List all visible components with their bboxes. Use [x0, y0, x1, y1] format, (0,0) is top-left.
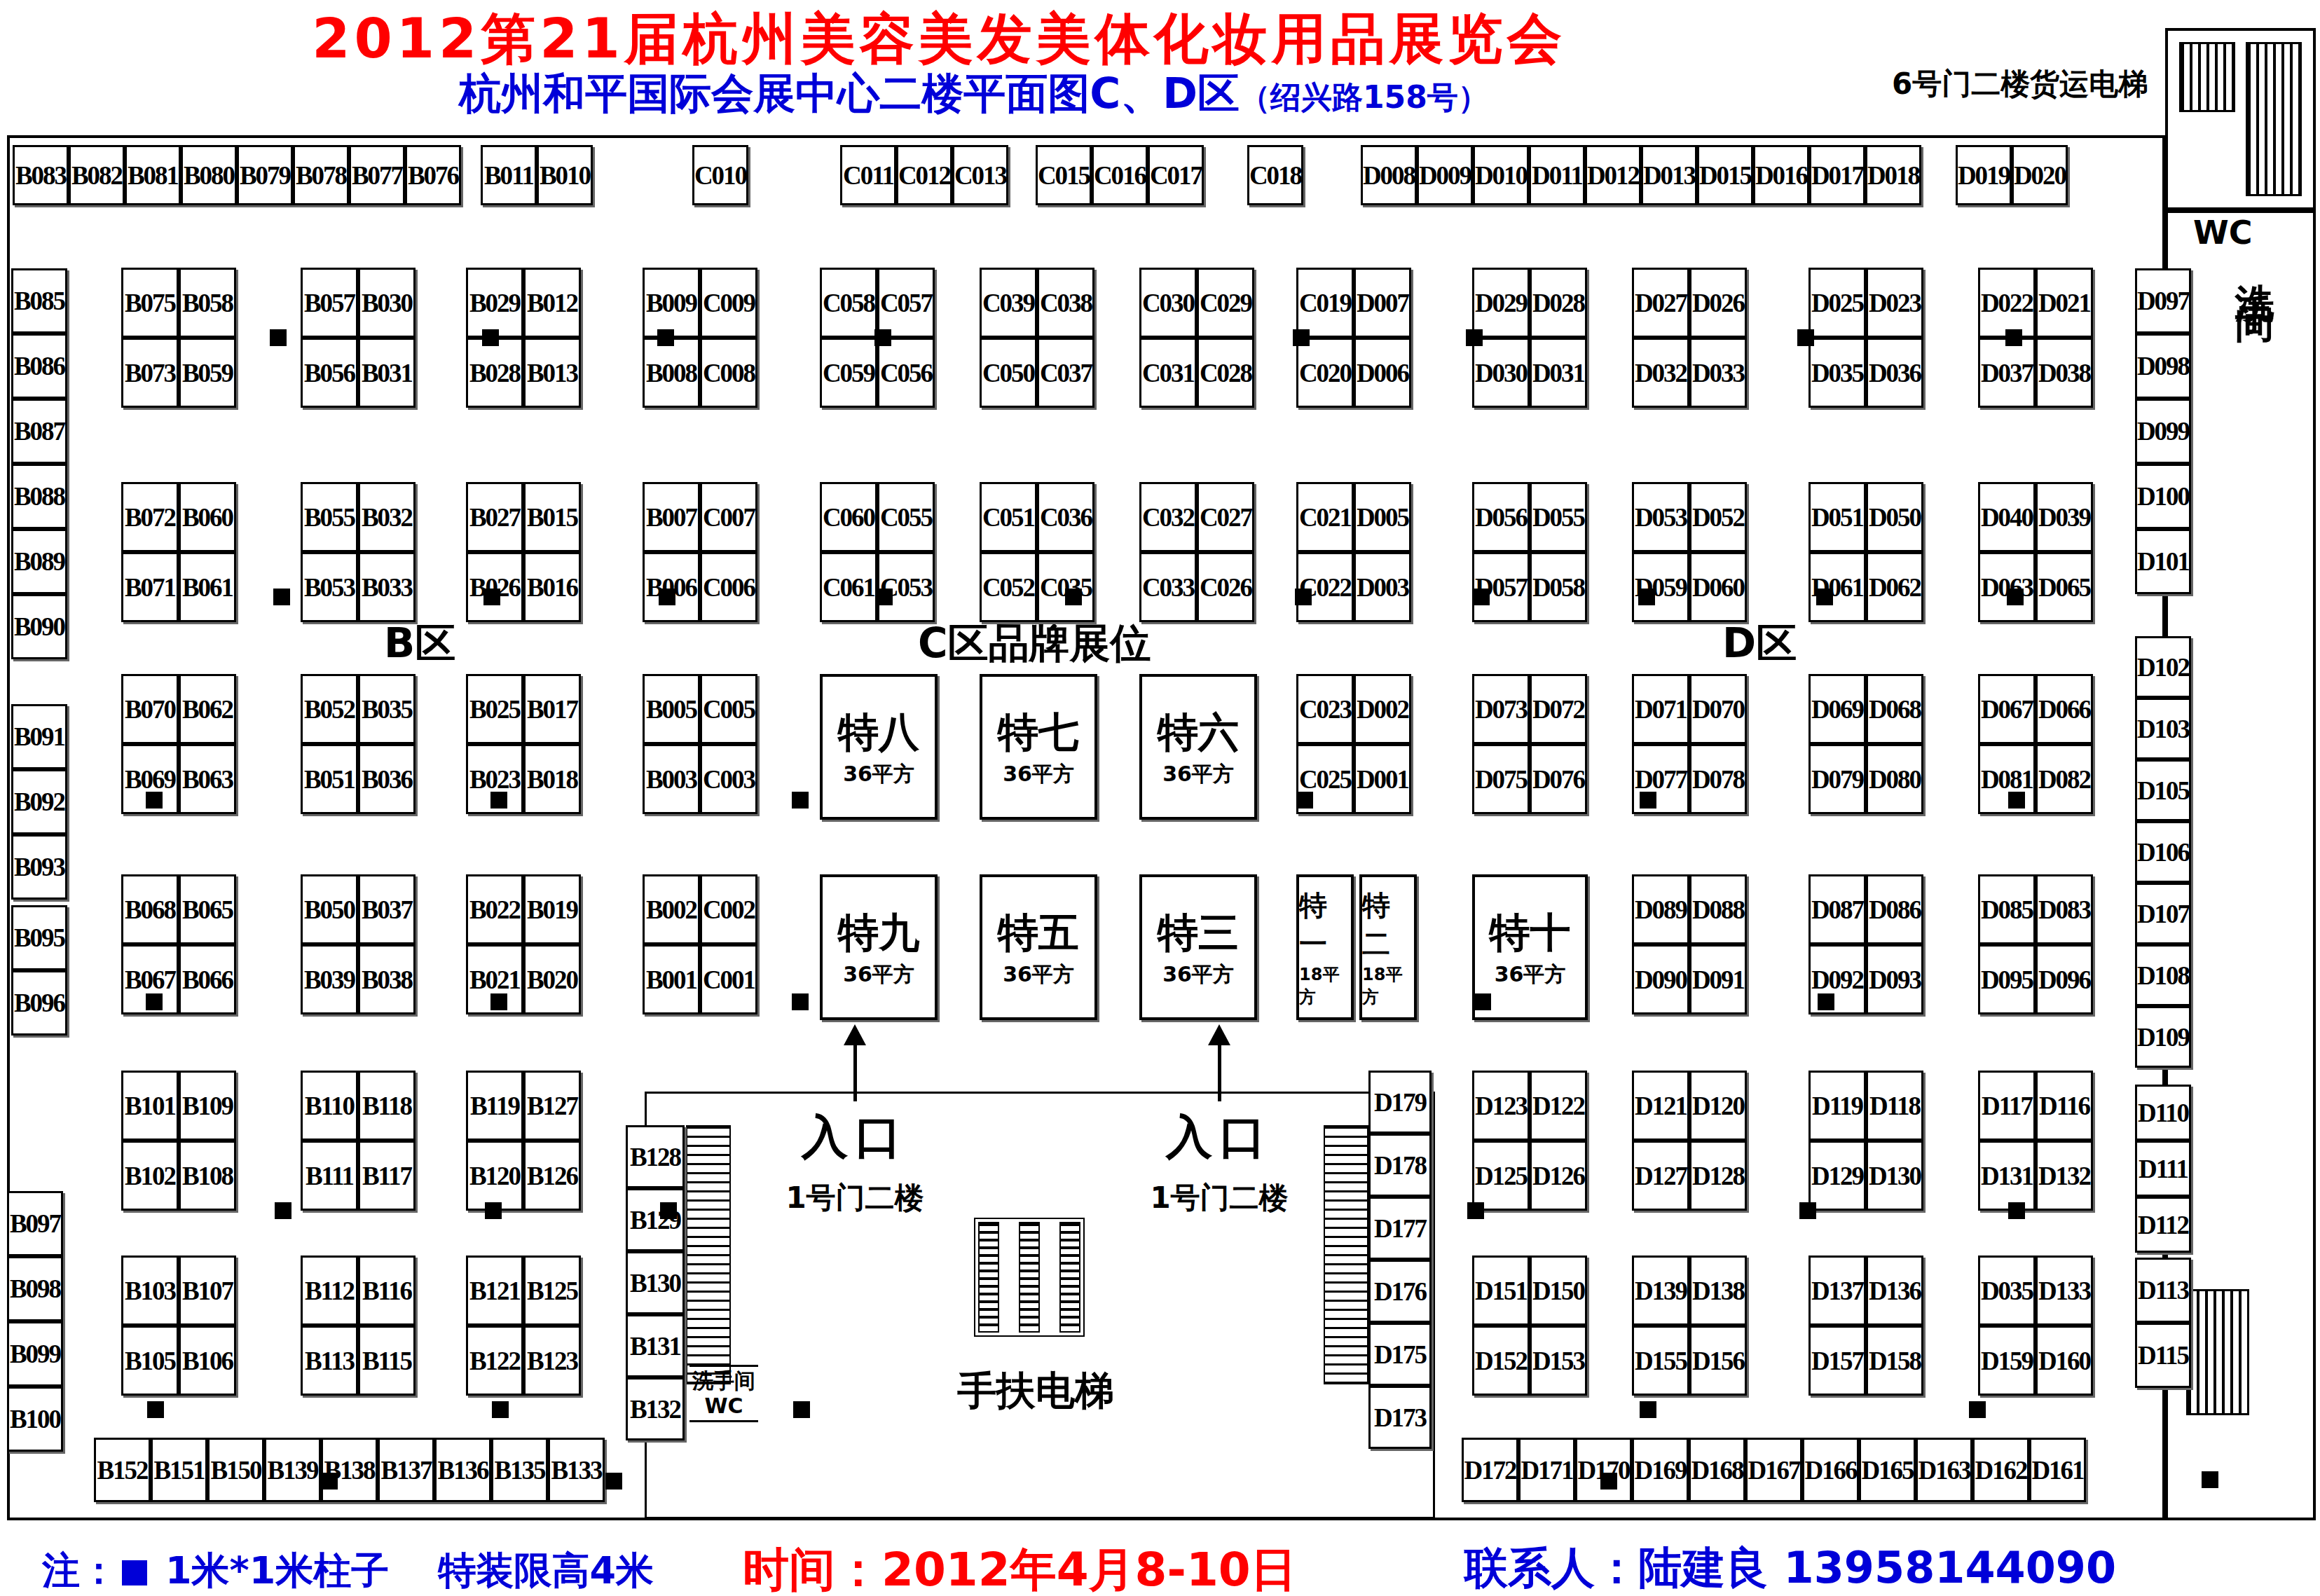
pillar	[275, 1202, 291, 1219]
booth-D002: D002	[1354, 674, 1411, 744]
booth-D130: D130	[1866, 1141, 1923, 1211]
booth-B002: B002	[643, 874, 700, 944]
booth-D025: D025	[1808, 268, 1866, 338]
booth-C015: C015	[1036, 145, 1092, 205]
pillar	[1467, 1202, 1484, 1219]
booth-B136: B136	[434, 1438, 491, 1502]
booth-D001: D001	[1354, 744, 1411, 814]
freight-elevator-label: 6号门二楼货运电梯	[1892, 64, 2148, 104]
legend-note: 注：1米*1米柱子特装限高4米	[42, 1546, 654, 1596]
booth-D109: D109	[2135, 1006, 2191, 1068]
booth-B027: B027	[466, 482, 523, 552]
booth-B018: B018	[523, 744, 581, 814]
pillar	[485, 1202, 502, 1219]
booth-B055: B055	[301, 482, 358, 552]
booth-D158: D158	[1866, 1326, 1923, 1396]
booth-B029: B029	[466, 268, 523, 338]
booth-C027: C027	[1197, 482, 1254, 552]
booth-D150: D150	[1530, 1256, 1587, 1326]
booth-D020: D020	[2012, 145, 2068, 205]
booth-B131: B131	[626, 1314, 685, 1377]
booth-B017: B017	[523, 674, 581, 744]
booth-C002: C002	[700, 874, 757, 944]
booth-B110: B110	[301, 1071, 358, 1141]
booth-B028: B028	[466, 338, 523, 408]
booth-D091: D091	[1689, 944, 1747, 1014]
booth-B003: B003	[643, 744, 700, 814]
booth-B117: B117	[358, 1141, 416, 1211]
booth-D033: D033	[1689, 338, 1747, 408]
booth-B030: B030	[358, 268, 416, 338]
booth-D103: D103	[2135, 698, 2191, 759]
booth-D097: D097	[2135, 268, 2191, 333]
booth-B082: B082	[69, 145, 125, 205]
booth-D169: D169	[1632, 1438, 1689, 1502]
pillar	[1600, 1473, 1617, 1490]
booth-D088: D088	[1689, 874, 1747, 944]
booth-B010: B010	[537, 145, 593, 205]
entrance-1-sub: 1号门二楼	[771, 1178, 939, 1218]
booth-B051: B051	[301, 744, 358, 814]
booth-D031: D031	[1530, 338, 1587, 408]
booth-C017: C017	[1148, 145, 1204, 205]
booth-B113: B113	[301, 1326, 358, 1396]
booth-D152: D152	[1472, 1326, 1530, 1396]
booth-D177: D177	[1368, 1197, 1432, 1260]
booth-B061: B061	[179, 552, 236, 622]
booth-B031: B031	[358, 338, 416, 408]
booth-B052: B052	[301, 674, 358, 744]
booth-B111: B111	[301, 1141, 358, 1211]
booth-B079: B079	[237, 145, 293, 205]
booth-D100: D100	[2135, 464, 2191, 529]
booth-B093: B093	[11, 834, 67, 900]
special-booth-特五: 特五36平方	[980, 874, 1097, 1020]
booth-D083: D083	[2036, 874, 2093, 944]
booth-B085: B085	[11, 268, 67, 333]
pillar	[659, 589, 675, 605]
booth-B026: B026	[466, 552, 523, 622]
special-booth-特九: 特九36平方	[820, 874, 938, 1020]
booth-B089: B089	[11, 529, 67, 594]
entrance-1-label: 入口	[771, 1106, 939, 1169]
booth-D161: D161	[2029, 1438, 2086, 1502]
booth-C051: C051	[980, 482, 1037, 552]
booth-B006: B006	[643, 552, 700, 622]
legend-contact: 联系人：陆建良 13958144090	[1464, 1539, 2116, 1596]
pillar	[482, 329, 499, 346]
booth-B001: B001	[643, 944, 700, 1014]
booth-D022: D022	[1978, 268, 2036, 338]
booth-C037: C037	[1037, 338, 1094, 408]
booth-D110: D110	[2135, 1085, 2191, 1141]
booth-C028: C028	[1197, 338, 1254, 408]
pillar	[874, 329, 891, 346]
booth-B063: B063	[179, 744, 236, 814]
booth-C005: C005	[700, 674, 757, 744]
booth-D075: D075	[1472, 744, 1530, 814]
booth-D095: D095	[1978, 944, 2036, 1014]
booth-B086: B086	[11, 333, 67, 399]
booth-C029: C029	[1197, 268, 1254, 338]
pillar	[792, 792, 809, 809]
pillar	[483, 589, 500, 605]
stairs-right	[1324, 1125, 1368, 1384]
booth-D139: D139	[1632, 1256, 1689, 1326]
booth-B119: B119	[466, 1071, 523, 1141]
wc-center-label: 洗手间 WC	[689, 1365, 758, 1422]
booth-B007: B007	[643, 482, 700, 552]
booth-C058: C058	[820, 268, 877, 338]
booth-B070: B070	[121, 674, 179, 744]
booth-D120: D120	[1689, 1071, 1747, 1141]
legend-time: 时间：2012年4月8-10日	[743, 1539, 1297, 1596]
booth-D105: D105	[2135, 759, 2191, 821]
booth-D089: D089	[1632, 874, 1689, 944]
booth-D081: D081	[1978, 744, 2036, 814]
pillar	[1295, 589, 1312, 605]
booth-B102: B102	[121, 1141, 179, 1211]
booth-D030: D030	[1472, 338, 1530, 408]
booth-D003: D003	[1354, 552, 1411, 622]
pillar	[1816, 589, 1833, 605]
booth-B120: B120	[466, 1141, 523, 1211]
entrance-arrow-2	[1205, 1024, 1233, 1101]
booth-C018: C018	[1247, 145, 1303, 205]
escalator-label: 手扶电梯	[957, 1365, 1114, 1418]
pillar	[492, 1401, 509, 1418]
booth-B015: B015	[523, 482, 581, 552]
booth-C032: C032	[1139, 482, 1197, 552]
booth-B125: B125	[523, 1256, 581, 1326]
pillar	[490, 792, 507, 809]
booth-D027: D027	[1632, 268, 1689, 338]
booth-C026: C026	[1197, 552, 1254, 622]
pillar	[1293, 329, 1310, 346]
wc-right-label: WC	[2193, 214, 2253, 252]
booth-D172: D172	[1462, 1438, 1518, 1502]
booth-D168: D168	[1689, 1438, 1745, 1502]
booth-D133: D133	[2036, 1256, 2093, 1326]
booth-D179: D179	[1368, 1071, 1432, 1134]
booth-C012: C012	[896, 145, 952, 205]
booth-B083: B083	[13, 145, 69, 205]
booth-D080: D080	[1866, 744, 1923, 814]
booth-B130: B130	[626, 1251, 685, 1314]
booth-B151: B151	[151, 1438, 207, 1502]
booth-B057: B057	[301, 268, 358, 338]
booth-D122: D122	[1530, 1071, 1587, 1141]
booth-D018: D018	[1865, 145, 1921, 205]
pillar	[270, 329, 287, 346]
booth-C003: C003	[700, 744, 757, 814]
booth-B013: B013	[523, 338, 581, 408]
booth-B036: B036	[358, 744, 416, 814]
booth-D117: D117	[1978, 1071, 2036, 1141]
pillar	[660, 1202, 677, 1219]
booth-B072: B072	[121, 482, 179, 552]
pillar	[1065, 589, 1082, 605]
zone-c-label: C区品牌展位	[918, 617, 1151, 671]
booth-B121: B121	[466, 1256, 523, 1326]
booth-D071: D071	[1632, 674, 1689, 744]
booth-D057: D057	[1472, 552, 1530, 622]
booth-B012: B012	[523, 268, 581, 338]
booth-B095: B095	[11, 905, 67, 970]
booth-D102: D102	[2135, 636, 2191, 698]
booth-D061: D061	[1808, 552, 1866, 622]
zone-d-label: D区	[1722, 617, 1797, 671]
booth-B133: B133	[548, 1438, 605, 1502]
booth-B025: B025	[466, 674, 523, 744]
pillar	[1797, 329, 1814, 346]
booth-B098: B098	[7, 1256, 63, 1321]
booth-B068: B068	[121, 874, 179, 944]
booth-D151: D151	[1472, 1256, 1530, 1326]
booth-C052: C052	[980, 552, 1037, 622]
entrance-arrow-1	[841, 1024, 869, 1101]
booth-D012: D012	[1585, 145, 1641, 205]
booth-C001: C001	[700, 944, 757, 1014]
pillar	[657, 329, 674, 346]
pillar	[273, 589, 290, 605]
booth-D178: D178	[1368, 1134, 1432, 1197]
booth-C020: C020	[1296, 338, 1354, 408]
special-booth-特一: 特一18平方	[1296, 874, 1354, 1020]
booth-D038: D038	[2036, 338, 2093, 408]
booth-B037: B037	[358, 874, 416, 944]
booth-B078: B078	[293, 145, 349, 205]
booth-D039: D039	[2036, 482, 2093, 552]
pillar	[1799, 1202, 1816, 1219]
entrance-2: 入口 1号门二楼	[1135, 1106, 1303, 1218]
pillar	[2008, 792, 2025, 809]
booth-B152: B152	[94, 1438, 151, 1502]
pillar	[146, 792, 163, 809]
pillar	[1640, 1401, 1656, 1418]
booth-B105: B105	[121, 1326, 179, 1396]
booth-B053: B053	[301, 552, 358, 622]
pillar	[490, 993, 507, 1010]
booth-D129: D129	[1808, 1141, 1866, 1211]
booth-C013: C013	[952, 145, 1008, 205]
booth-B090: B090	[11, 594, 67, 659]
pillar	[876, 589, 893, 605]
special-booth-特三: 特三36平方	[1139, 874, 1257, 1020]
booth-D115: D115	[2135, 1323, 2191, 1388]
entrance-1: 入口 1号门二楼	[771, 1106, 939, 1218]
booth-B132: B132	[626, 1377, 685, 1440]
booth-D019: D019	[1956, 145, 2012, 205]
booth-B065: B065	[179, 874, 236, 944]
booth-B077: B077	[349, 145, 405, 205]
booth-D138: D138	[1689, 1256, 1747, 1326]
subtitle-main: 杭州和平国际会展中心二楼平面图C、D区	[459, 69, 1240, 118]
booth-B056: B056	[301, 338, 358, 408]
booth-D028: D028	[1530, 268, 1587, 338]
zone-b-label: B区	[384, 617, 455, 671]
booth-B016: B016	[523, 552, 581, 622]
booth-D127: D127	[1632, 1141, 1689, 1211]
booth-D065: D065	[2036, 552, 2093, 622]
pillar	[146, 993, 163, 1010]
pillar	[1474, 993, 1491, 1010]
booth-C030: C030	[1139, 268, 1197, 338]
booth-C053: C053	[877, 552, 935, 622]
booth-C033: C033	[1139, 552, 1197, 622]
booth-B058: B058	[179, 268, 236, 338]
booth-D013: D013	[1641, 145, 1697, 205]
booth-D078: D078	[1689, 744, 1747, 814]
booth-D112: D112	[2135, 1197, 2191, 1253]
booth-D107: D107	[2135, 883, 2191, 944]
booth-B118: B118	[358, 1071, 416, 1141]
booth-D068: D068	[1866, 674, 1923, 744]
booth-C011: C011	[840, 145, 896, 205]
pillar-legend-swatch	[122, 1560, 147, 1585]
pillar	[793, 1401, 810, 1418]
booth-B032: B032	[358, 482, 416, 552]
booth-D066: D066	[2036, 674, 2093, 744]
booth-D059: D059	[1632, 552, 1689, 622]
booth-B108: B108	[179, 1141, 236, 1211]
booth-C061: C061	[820, 552, 877, 622]
booth-D008: D008	[1361, 145, 1417, 205]
booth-C059: C059	[820, 338, 877, 408]
booth-D010: D010	[1473, 145, 1529, 205]
booth-D111: D111	[2135, 1141, 2191, 1197]
booth-D123: D123	[1472, 1071, 1530, 1141]
subtitle-address: （绍兴路158号）	[1240, 79, 1489, 115]
booth-C019: C019	[1296, 268, 1354, 338]
pillar	[2007, 589, 2024, 605]
booth-D085: D085	[1978, 874, 2036, 944]
booth-C039: C039	[980, 268, 1037, 338]
booth-D136: D136	[1866, 1256, 1923, 1326]
booth-D052: D052	[1689, 482, 1747, 552]
freight-elevator-cab-1	[2179, 42, 2235, 112]
booth-D035: D035	[1978, 1256, 2036, 1326]
booth-C010: C010	[692, 145, 748, 205]
pillar	[2008, 1202, 2025, 1219]
booth-B135: B135	[491, 1438, 548, 1502]
booth-D073: D073	[1472, 674, 1530, 744]
booth-D128: D128	[1689, 1141, 1747, 1211]
booth-D113: D113	[2135, 1258, 2191, 1323]
booth-D015: D015	[1697, 145, 1753, 205]
escalator-lane-3	[1059, 1222, 1080, 1333]
booth-D062: D062	[1866, 552, 1923, 622]
booth-C016: C016	[1092, 145, 1148, 205]
pillar	[2005, 329, 2022, 346]
booth-B112: B112	[301, 1256, 358, 1326]
booth-B081: B081	[125, 145, 181, 205]
booth-D007: D007	[1354, 268, 1411, 338]
booth-D037: D037	[1978, 338, 2036, 408]
booth-D026: D026	[1689, 268, 1747, 338]
booth-C050: C050	[980, 338, 1037, 408]
booth-D036: D036	[1866, 338, 1923, 408]
booth-C060: C060	[820, 482, 877, 552]
booth-C008: C008	[700, 338, 757, 408]
booth-C038: C038	[1037, 268, 1094, 338]
booth-C031: C031	[1139, 338, 1197, 408]
booth-C021: C021	[1296, 482, 1354, 552]
booth-D108: D108	[2135, 944, 2191, 1006]
booth-B139: B139	[264, 1438, 321, 1502]
booth-D171: D171	[1518, 1438, 1575, 1502]
wc-center-wc: WC	[704, 1394, 743, 1418]
booth-B033: B033	[358, 552, 416, 622]
pillar	[2202, 1471, 2218, 1488]
booth-B071: B071	[121, 552, 179, 622]
entrance-2-sub: 1号门二楼	[1135, 1178, 1303, 1218]
booth-B088: B088	[11, 464, 67, 529]
booth-D032: D032	[1632, 338, 1689, 408]
booth-C056: C056	[877, 338, 935, 408]
booth-B066: B066	[179, 944, 236, 1014]
booth-D023: D023	[1866, 268, 1923, 338]
booth-B005: B005	[643, 674, 700, 744]
booth-D162: D162	[1972, 1438, 2029, 1502]
booth-D098: D098	[2135, 333, 2191, 399]
booth-D021: D021	[2036, 268, 2093, 338]
booth-D170: D170	[1575, 1438, 1632, 1502]
booth-D160: D160	[2036, 1326, 2093, 1396]
booth-B106: B106	[179, 1326, 236, 1396]
booth-D040: D040	[1978, 482, 2036, 552]
booth-D053: D053	[1632, 482, 1689, 552]
booth-B097: B097	[7, 1191, 63, 1256]
booth-B075: B075	[121, 268, 179, 338]
booth-D029: D029	[1472, 268, 1530, 338]
booth-D006: D006	[1354, 338, 1411, 408]
booth-B109: B109	[179, 1071, 236, 1141]
legend-note-pillar: 1米*1米柱子	[165, 1548, 389, 1592]
booth-B099: B099	[7, 1321, 63, 1387]
booth-D009: D009	[1417, 145, 1473, 205]
special-booth-特六: 特六36平方	[1139, 674, 1257, 820]
booth-D082: D082	[2036, 744, 2093, 814]
booth-D155: D155	[1632, 1326, 1689, 1396]
legend-note-height: 特装限高4米	[438, 1548, 654, 1592]
special-booth-特七: 特七36平方	[980, 674, 1097, 820]
booth-D131: D131	[1978, 1141, 2036, 1211]
pillar	[1818, 993, 1834, 1010]
booth-B020: B020	[523, 944, 581, 1014]
booth-B100: B100	[7, 1387, 63, 1452]
booth-D016: D016	[1753, 145, 1809, 205]
pillar	[1466, 329, 1483, 346]
booth-B087: B087	[11, 399, 67, 464]
pillar	[1296, 792, 1313, 809]
booth-B101: B101	[121, 1071, 179, 1141]
floor-plan: 2012第21届杭州美容美发美体化妆用品展览会 杭州和平国际会展中心二楼平面图C…	[0, 0, 2320, 1596]
booth-B138: B138	[321, 1438, 378, 1502]
booth-D076: D076	[1530, 744, 1587, 814]
pillar	[1473, 589, 1490, 605]
booth-D126: D126	[1530, 1141, 1587, 1211]
booth-D156: D156	[1689, 1326, 1747, 1396]
freight-elevator-cab-2	[2246, 42, 2302, 196]
booth-D017: D017	[1809, 145, 1865, 205]
booth-D157: D157	[1808, 1326, 1866, 1396]
booth-D011: D011	[1529, 145, 1585, 205]
pillar	[792, 993, 809, 1010]
pillar	[1640, 792, 1656, 809]
booth-B096: B096	[11, 970, 67, 1036]
pillar	[147, 1401, 164, 1418]
